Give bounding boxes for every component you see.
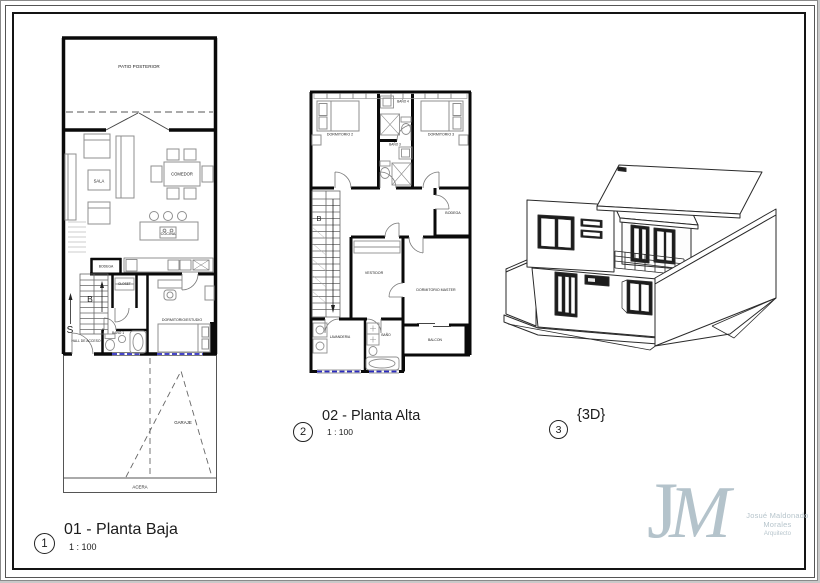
- label-dormitorio-master: DORMITORIO MASTER: [416, 288, 456, 292]
- label-lavanderia: LAVANDERIA: [330, 335, 351, 339]
- view-scale-planta-alta: 1 : 100: [327, 427, 420, 437]
- view-number-bubble-3[interactable]: 3: [549, 420, 568, 439]
- label-bano-4: BAÑO 4: [397, 99, 409, 104]
- view-number-bubble-2[interactable]: 2: [293, 422, 313, 442]
- logo-letter-m: M: [669, 472, 731, 554]
- dormitorio-furniture: [158, 280, 214, 352]
- label-dormitorio-estudio: DORMITORIO/ESTUDIO: [162, 318, 202, 322]
- label-hall-de-acceso: HALL DE ACCESO: [71, 339, 100, 343]
- label-stair-down-b: B: [316, 214, 321, 223]
- view-number-bubble-1[interactable]: 1: [34, 533, 55, 554]
- bano2-fixtures: [366, 323, 399, 370]
- drawing-sheet: PATIO POSTERIOR SALA COMEDOR COCINA BODE…: [0, 0, 818, 581]
- label-bodega: BODEGA: [99, 265, 114, 269]
- upper-floor-facade: [527, 200, 614, 272]
- dormitorio2-furniture: [312, 101, 359, 145]
- view-title-planta-baja: 1 01 - Planta Baja 1 : 100: [34, 521, 178, 554]
- view-title-text-planta-alta: 02 - Planta Alta: [322, 408, 420, 424]
- view-scale-planta-baja: 1 : 100: [69, 542, 178, 552]
- label-stair-down-b: B: [87, 294, 93, 304]
- roof: [597, 165, 762, 218]
- label-bano-3: BAÑO 3: [389, 142, 401, 147]
- lower-floor-facade: [532, 268, 657, 337]
- label-bano: BAÑO: [381, 332, 391, 337]
- kitchen-counter: [124, 258, 213, 272]
- door-swings: [325, 125, 449, 333]
- logo-monogram: JM: [647, 475, 731, 549]
- architect-logo: JM Josué Maldonado Morales Arquitecto: [647, 475, 817, 549]
- view-number-3: 3: [556, 424, 562, 436]
- vestidor-fixture: [354, 241, 400, 253]
- roof-vent: [618, 167, 626, 172]
- architect-name: Josué Maldonado Morales: [738, 511, 817, 529]
- window-glazing: [317, 370, 399, 373]
- view-title-text-planta-baja: 01 - Planta Baja: [64, 521, 178, 539]
- label-acera: ACERA: [132, 485, 147, 490]
- garage-markings: [126, 358, 212, 477]
- staircase: [312, 191, 340, 317]
- label-dormitorio-2: DORMITORIO 2: [327, 133, 353, 137]
- label-patio-posterior: PATIO POSTERIOR: [118, 64, 160, 69]
- view-number-1: 1: [41, 538, 47, 550]
- patio-elements: [66, 112, 213, 130]
- exterior-walls: [62, 38, 217, 354]
- label-bano-1: BAÑO 1: [112, 330, 124, 335]
- label-stair-up-s: S: [67, 325, 74, 336]
- balcony-door-1: [631, 225, 649, 263]
- view-number-2: 2: [300, 426, 306, 438]
- dormitorio3-furniture: [421, 101, 468, 145]
- window-glazing: [112, 352, 203, 355]
- label-cocina: COCINA: [161, 232, 176, 236]
- label-comedor: COMEDOR: [171, 172, 193, 177]
- viewport-planta-baja[interactable]: PATIO POSTERIOR SALA COMEDOR COCINA BODE…: [60, 34, 220, 496]
- label-balcon: BALCON: [428, 338, 442, 342]
- label-sala: SALA: [94, 179, 105, 184]
- bano3-fixtures: [380, 147, 412, 185]
- staircase: [68, 222, 108, 334]
- label-dormitorio-3: DORMITORIO 3: [428, 133, 454, 137]
- view-title-3d: 3 {3D}: [549, 407, 605, 439]
- view-title-planta-alta: 2 02 - Planta Alta 1 : 100: [293, 408, 420, 442]
- viewport-3d[interactable]: [498, 158, 798, 363]
- label-closet: CLOSET: [118, 282, 131, 286]
- garage-boundary: [64, 355, 217, 493]
- viewport-planta-alta[interactable]: DORMITORIO 2 BAÑO 4 DORMITORIO 3 BAÑO 3 …: [307, 87, 474, 379]
- label-bodega: BODEGA: [445, 211, 461, 215]
- view-title-text-3d: {3D}: [577, 407, 605, 423]
- architect-role: Arquitecto: [738, 531, 817, 537]
- label-vestidor: VESTIDOR: [365, 271, 384, 275]
- label-garaje: GARAJE: [174, 420, 192, 425]
